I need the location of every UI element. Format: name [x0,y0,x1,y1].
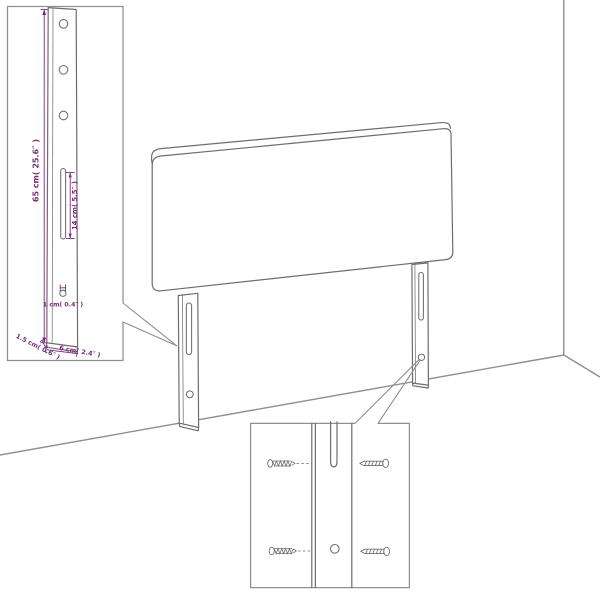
left-leg-hole [186,391,193,398]
headboard-left-leg [178,293,198,431]
hole-dimension-label: 1 cm( 0.4″ ) [43,302,83,309]
headboard-assembly-diagram: 65 cm( 25.6″ ) 14 cm( 5.5″ ) 1 cm( 0.4″ … [0,0,600,600]
screw-detail-inset [251,359,421,587]
width-dimension-label: 6 cm( 2.4″ ) [59,344,101,359]
detail-hole-lower [59,111,68,120]
detail-slot [61,169,66,240]
detail-small-hole [60,290,66,296]
leg-detail-inset: 65 cm( 25.6″ ) 14 cm( 5.5″ ) 1 cm( 0.4″ … [8,7,177,362]
leg-detail-callout-lines [123,303,177,346]
panel-front-face [152,129,453,291]
screw-top-left [268,460,310,468]
slot-dimension-label: 14 cm( 5.5″ ) [71,181,79,230]
headboard-panel [152,123,453,291]
detail-strip-slot [331,422,337,467]
height-dimension-label: 65 cm( 25.6″ ) [32,139,41,202]
screw-detail-callout-lines [355,359,420,423]
screw-bottom-left [269,547,311,555]
detail-strip-hole [331,545,340,554]
detail-leg-strip [312,423,352,587]
detail-hole-top [59,20,68,29]
screw-top-right [360,459,389,467]
right-leg-slot [419,273,424,321]
left-leg-slot [186,303,191,355]
height-dimension: 65 cm( 25.6″ ) [32,9,48,343]
detail-hole-middle [59,66,68,75]
screw-bottom-right [361,547,390,555]
floor-line [0,355,600,455]
diagram-stage: 65 cm( 25.6″ ) 14 cm( 5.5″ ) 1 cm( 0.4″ … [0,0,600,600]
